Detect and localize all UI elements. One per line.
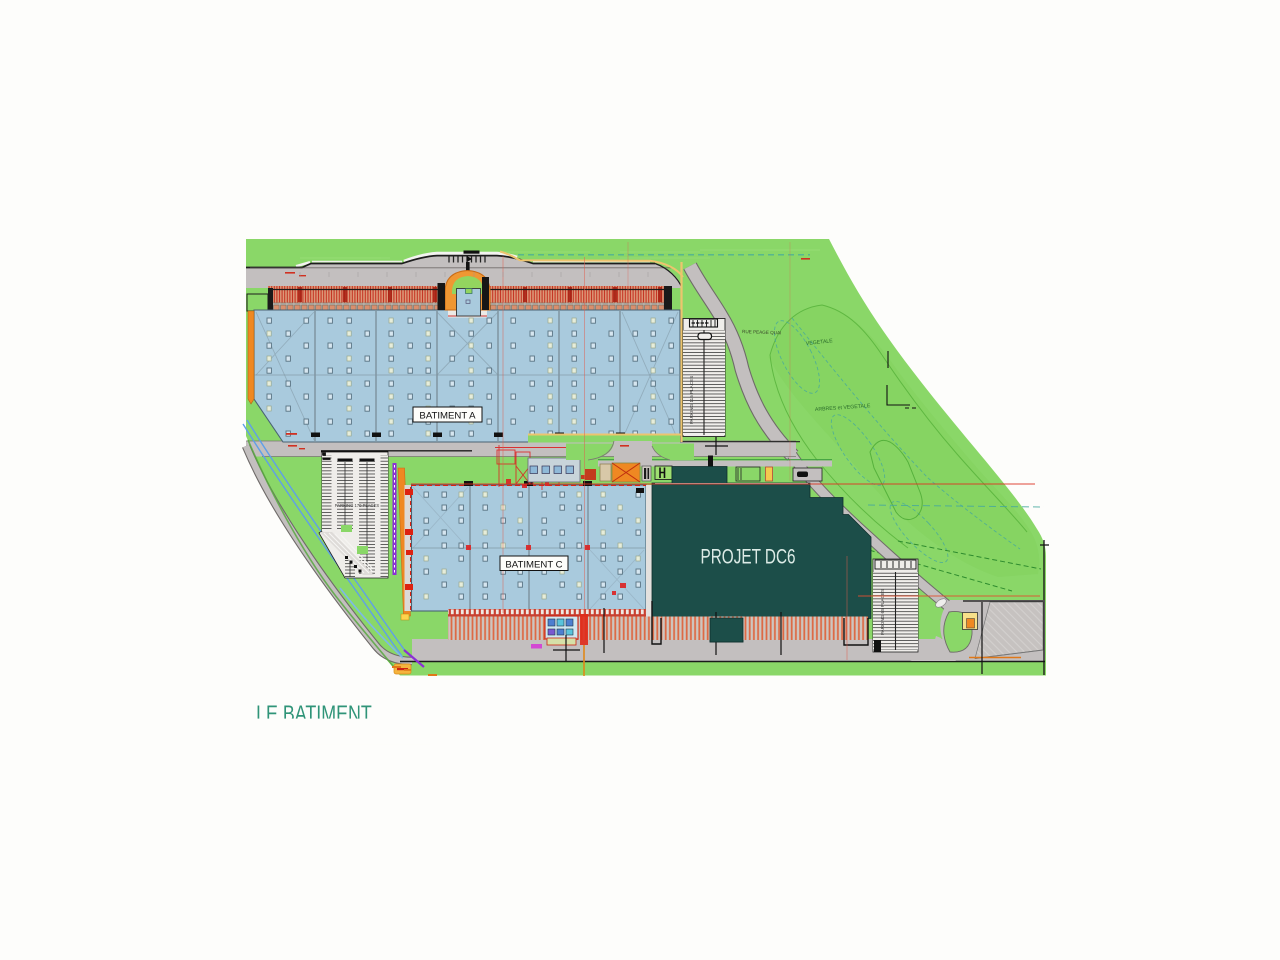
svg-text:PROJET DC6: PROJET DC6	[700, 544, 795, 568]
svg-text:PARKING 170 PLACES: PARKING 170 PLACES	[335, 503, 380, 508]
svg-text:BATIMENT A: BATIMENT A	[419, 411, 476, 422]
svg-text:BATIMENT C: BATIMENT C	[505, 559, 562, 570]
svg-text:PARKING 115 PLACES: PARKING 115 PLACES	[689, 376, 694, 424]
